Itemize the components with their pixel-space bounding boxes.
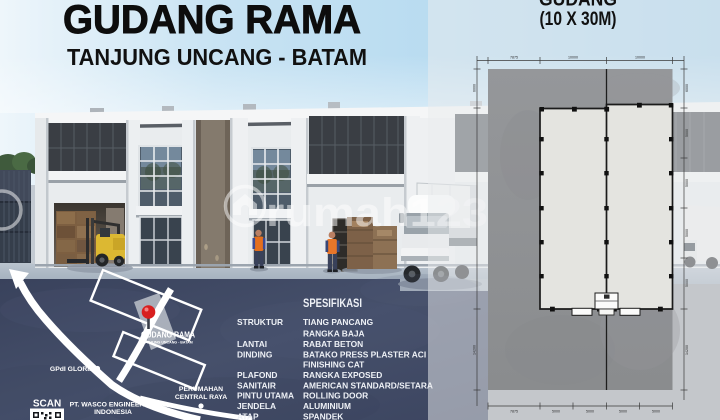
svg-text:5000: 5000	[685, 179, 689, 187]
svg-text:5000: 5000	[685, 129, 689, 137]
svg-text:PT. WASCO ENGINEERING: PT. WASCO ENGINEERING	[70, 402, 157, 409]
svg-text:AMERICAN STANDARD/SETARA: AMERICAN STANDARD/SETARA	[303, 380, 433, 390]
svg-text:DINDING: DINDING	[237, 349, 272, 359]
svg-text:ATAP: ATAP	[237, 412, 259, 420]
svg-text:SPANDEK: SPANDEK	[303, 412, 343, 420]
svg-text:SPESIFIKASI: SPESIFIKASI	[303, 298, 362, 310]
svg-text:INDONESIA: INDONESIA	[94, 409, 132, 416]
svg-text:RANGKA EXPOSED: RANGKA EXPOSED	[303, 370, 382, 380]
svg-text:10000: 10000	[635, 56, 645, 60]
svg-text:SCAN: SCAN	[33, 399, 61, 410]
svg-text:14200: 14200	[685, 345, 689, 355]
svg-text:7875: 7875	[510, 56, 518, 60]
svg-text:5000: 5000	[586, 410, 594, 414]
svg-text:LANTAI: LANTAI	[237, 339, 267, 349]
svg-text:GPdI GLORIA: GPdI GLORIA	[50, 366, 94, 373]
svg-text:5000: 5000	[685, 279, 689, 287]
svg-text:ROLLING DOOR: ROLLING DOOR	[303, 391, 368, 401]
svg-text:(10 X 30M): (10 X 30M)	[540, 9, 617, 30]
svg-text:GUDANG RAMA: GUDANG RAMA	[63, 0, 361, 42]
svg-text:BATAKO PRESS PLASTER ACI: BATAKO PRESS PLASTER ACI	[303, 349, 426, 359]
svg-text:6000: 6000	[473, 84, 477, 92]
svg-text:5000: 5000	[619, 410, 627, 414]
svg-text:6000: 6000	[685, 84, 689, 92]
svg-text:TANJUNG UNCANG - BATAM: TANJUNG UNCANG - BATAM	[67, 44, 367, 70]
svg-text:TIANG PANCANG: TIANG PANCANG	[303, 317, 373, 327]
svg-text:5000: 5000	[685, 229, 689, 237]
svg-text:FINISHING CAT: FINISHING CAT	[303, 360, 365, 370]
svg-text:10000: 10000	[568, 56, 578, 60]
svg-text:ALUMINIUM: ALUMINIUM	[303, 401, 351, 411]
svg-text:GUDANG RAMA: GUDANG RAMA	[141, 331, 195, 340]
svg-text:CENTRAL RAYA: CENTRAL RAYA	[175, 394, 227, 401]
svg-text:PERUMAHAN: PERUMAHAN	[179, 386, 223, 393]
svg-text:PINTU UTAMA: PINTU UTAMA	[237, 391, 294, 401]
svg-text:7875: 7875	[510, 410, 518, 414]
svg-text:14200: 14200	[473, 345, 477, 355]
svg-text:TANJUNG UNCANG - BATAM: TANJUNG UNCANG - BATAM	[143, 341, 193, 345]
svg-text:RABAT BETON: RABAT BETON	[303, 339, 363, 349]
svg-text:SANITAIR: SANITAIR	[237, 380, 276, 390]
svg-text:PLAFOND: PLAFOND	[237, 370, 277, 380]
svg-text:STRUKTUR: STRUKTUR	[237, 317, 283, 327]
svg-text:5000: 5000	[552, 410, 560, 414]
svg-text:5000: 5000	[652, 410, 660, 414]
svg-text:JENDELA: JENDELA	[237, 401, 276, 411]
svg-text:RANGKA BAJA: RANGKA BAJA	[303, 329, 365, 339]
